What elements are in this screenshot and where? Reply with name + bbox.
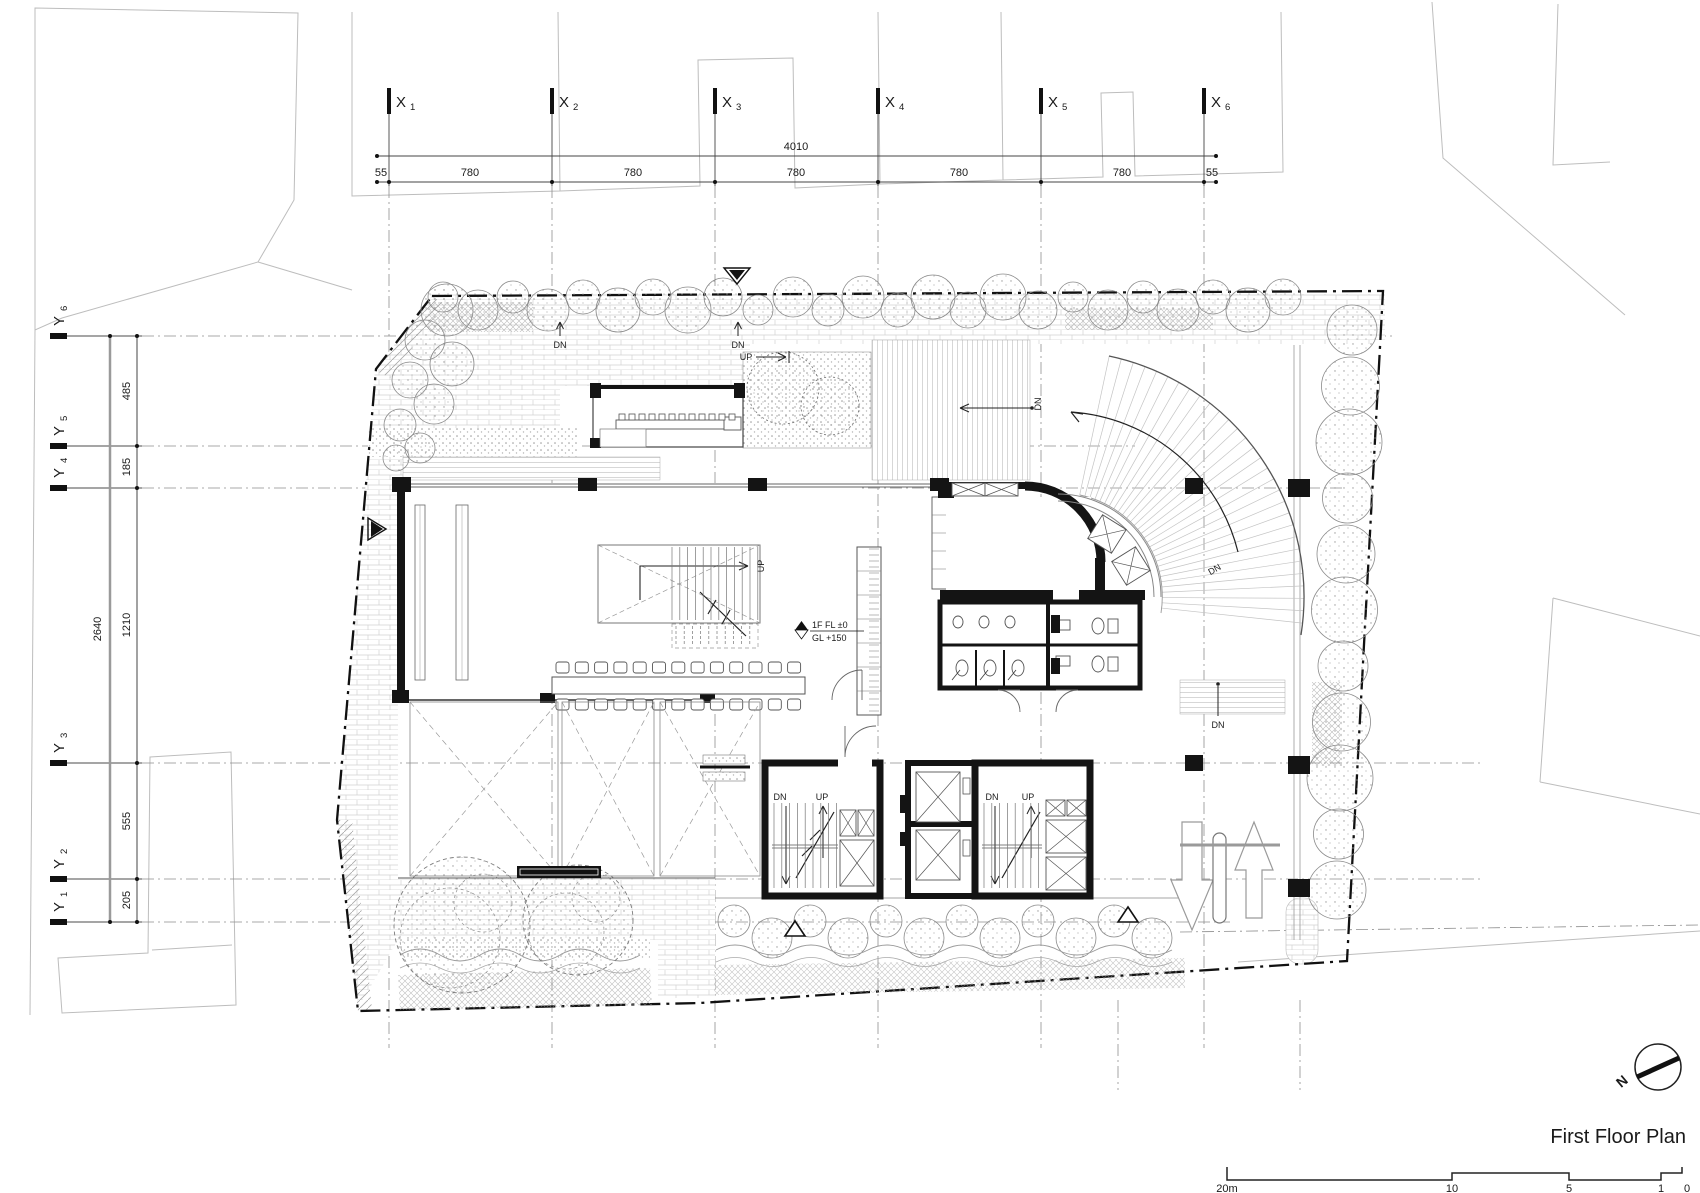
tree-icon [1313,693,1371,751]
step-line [1161,561,1301,582]
step-line [1160,549,1299,577]
axis-y5-num: 5 [59,416,70,421]
tree-icon [946,905,978,937]
stool [639,414,645,420]
floor-plan-canvas: X 1 X 2 X 3 X 4 X 5 X 6 4010 55 780 780 … [0,0,1700,1193]
chair [595,699,608,710]
step-line [1162,573,1303,587]
step-line [1114,389,1190,509]
step-line [1156,513,1289,562]
tree-icon [1317,525,1375,583]
dim-top-seg-6: 55 [1206,167,1218,179]
step-line [1154,501,1285,556]
axis-x6-label: X [1211,94,1221,111]
dim-left-total: 2640 [92,617,104,641]
tree-icon [1058,282,1088,312]
level-line2: GL +150 [812,633,846,643]
stool [649,414,655,420]
dim-top-seg-3: 780 [787,167,805,179]
axis-x6-num: 6 [1225,102,1230,113]
car-up-arrow-icon [1235,822,1273,918]
chair [788,699,801,710]
chair [575,662,588,673]
tree-icon [773,277,813,317]
chair [595,662,608,673]
axis-y5-label: Y [51,426,68,436]
chair [710,699,723,710]
dimension-left: 2640 485 185 1210 555 205 [92,334,139,924]
tree-icon [870,905,902,937]
axis-x5-num: 5 [1062,102,1067,113]
axis-y6-label: Y [51,316,68,326]
tree-icon [743,295,773,325]
step-line [1162,603,1304,611]
tree-icon [1316,409,1382,475]
tree-icon [718,905,750,937]
dim-left-seg-1: 185 [121,458,133,476]
axis-x5-label: X [1048,94,1058,111]
step-line [1085,359,1122,496]
axis-x3-num: 3 [736,102,741,113]
axis-y3-num: 3 [59,733,70,738]
step-line [1144,458,1261,538]
tree-icon [881,293,915,327]
tree-icon [911,275,955,319]
tree-icon [497,281,529,313]
chair [614,699,627,710]
chair [730,662,743,673]
dim-top-seg-2: 780 [624,167,642,179]
step-line [1162,598,1304,599]
step-line [1118,396,1200,512]
tree-icon [812,294,844,326]
chair [768,662,781,673]
chair [614,662,627,673]
step-line [1157,525,1293,567]
up-label-core-right: UP [1022,792,1035,802]
step-line [1080,356,1110,495]
dn-label-ramp: DN [1212,720,1225,730]
chair [575,699,588,710]
scale-tick-10: 10 [1446,1183,1458,1193]
bike-racks [700,755,750,781]
parking-entry [1171,822,1280,930]
dn-label-core-left: DN [774,792,787,802]
tree-icon [527,289,569,331]
chair [730,699,743,710]
axis-y6-num: 6 [59,306,70,311]
tree-icon [1314,809,1364,859]
dim-left-seg-0: 485 [121,382,133,400]
dim-top-seg-5: 780 [1113,167,1131,179]
tree-icon [1088,290,1128,330]
tree-icon [1318,641,1368,691]
stool [689,414,695,420]
axis-x1-num: 1 [410,102,415,113]
scale-tick-20m: 20m [1216,1183,1237,1193]
axis-x4-label: X [885,94,895,111]
stool [629,414,635,420]
tree-icon [1322,357,1380,415]
chair [691,699,704,710]
step-line [1159,537,1297,572]
tree-icon [1327,305,1377,355]
axis-x3-label: X [722,94,732,111]
step-line [1095,367,1145,500]
tree-icon [414,384,454,424]
tree-icon [1265,279,1301,315]
axis-x2-label: X [559,94,569,111]
level-line1: 1F FL ±0 [812,620,848,630]
tree-icon [1308,861,1366,919]
tree-icon [1157,289,1199,331]
step-line [1147,468,1268,542]
dim-top-seg-0: 55 [375,167,387,179]
dn-label-walkway-east: DN [732,340,745,350]
chair [749,662,762,673]
chair [556,662,569,673]
step-line [1162,586,1304,592]
drawing-title: First Floor Plan [1550,1126,1686,1148]
floor-plan-sheet: X 1 X 2 X 3 X 4 X 5 X 6 4010 55 780 780 … [0,0,1700,1193]
dim-left-seg-2: 1210 [121,613,133,637]
car-down-arrow-icon [1171,822,1213,930]
north-letter: N [1613,1072,1631,1091]
scale-tick-5: 5 [1566,1183,1572,1193]
dim-top-seg-1: 780 [461,167,479,179]
stool [679,414,685,420]
step-line [1130,420,1228,522]
tree-icon [596,288,640,332]
chair [672,699,685,710]
tree-icon [1307,745,1373,811]
washrooms [940,602,1140,688]
up-label-central-stair: UP [756,560,766,573]
dim-top-total: 4010 [784,141,808,153]
dn-label-walkway-west: DN [554,340,567,350]
axis-y1-num: 1 [59,892,70,897]
scale-tick-1: 1 [1658,1183,1664,1193]
axis-x1-label: X [396,94,406,111]
tree-icon [405,433,435,463]
stool [719,414,725,420]
chair [672,662,685,673]
chair [710,662,723,673]
tree-icon [1127,281,1159,313]
chair [633,699,646,710]
terrace-bench [517,866,601,878]
dn-label-deck: DN [1033,398,1043,411]
dim-top-seg-4: 780 [950,167,968,179]
bush-row-bottom [718,905,1172,958]
tree-icon [1312,577,1378,643]
tree-icon [1019,291,1057,329]
step-line [1126,411,1219,518]
chair [653,662,666,673]
dim-left-seg-4: 205 [121,891,133,909]
axis-y4-label: Y [51,468,68,478]
step-line [1161,608,1302,623]
tree-icon [1323,473,1373,523]
x-axis: X 1 X 2 X 3 X 4 X 5 X 6 [389,88,1230,186]
scale-bar: 20m 10 5 1 0 [1216,1167,1690,1193]
dn-label-core-right: DN [986,792,999,802]
stool [709,414,715,420]
axis-y4-num: 4 [59,458,70,463]
dim-left-seg-3: 555 [121,812,133,830]
reading-table [552,677,805,694]
tree-icon [842,276,884,318]
tree-icon [383,445,409,471]
tree-icon [1196,280,1230,314]
tree-column-right [1307,305,1382,919]
north-arrow: N [1613,1044,1681,1091]
tree-icon [1022,905,1054,937]
terrace-canopy [398,702,760,878]
tree-icon [1226,288,1270,332]
scale-bar-line [1227,1167,1682,1180]
scale-tick-0: 0 [1684,1183,1690,1193]
chair [768,699,781,710]
tree-icon [430,342,474,386]
up-label-core-left: UP [816,792,829,802]
chair [633,662,646,673]
chair [653,699,666,710]
axis-y2-label: Y [51,859,68,869]
chair [691,662,704,673]
stool [669,414,675,420]
axis-x4-num: 4 [899,102,904,113]
stool [699,414,705,420]
axis-y1-label: Y [51,902,68,912]
tree-icon [566,280,600,314]
stool [729,414,735,420]
step-line [1090,363,1133,498]
stool [659,414,665,420]
up-label-pavilion: UP [740,352,753,362]
axis-x2-num: 2 [573,102,578,113]
stool [619,414,625,420]
axis-y3-label: Y [51,743,68,753]
chair [788,662,801,673]
step-line [1134,429,1238,526]
axis-y2-num: 2 [59,849,70,854]
